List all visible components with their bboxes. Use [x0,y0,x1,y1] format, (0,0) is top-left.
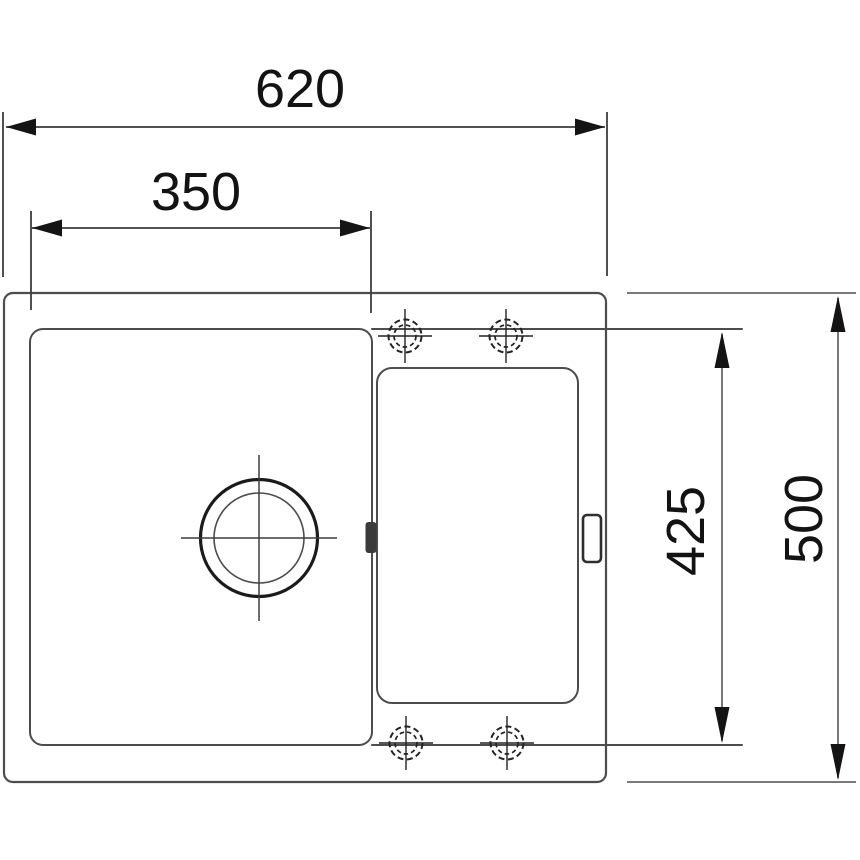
rim-clip-icon [583,515,601,562]
drainboard [377,368,578,703]
dim-label-inner-depth: 425 [656,486,716,576]
sink-technical-drawing: 620 350 425 500 [0,0,860,860]
dim-horizontal-group [3,112,607,313]
tap-hole-knockout-icon-top-right [479,309,533,363]
dim-label-overall-width: 620 [255,59,345,119]
tap-holes [378,309,534,770]
dim-label-bowl-width: 350 [151,162,241,222]
arrow-down-icon [831,744,846,780]
arrow-left-icon [32,220,62,237]
arrow-right-icon [575,119,605,136]
tap-hole-knockout-icon-bottom-right [480,716,534,770]
arrow-left-icon [6,119,36,136]
arrow-right-icon [340,220,370,237]
tap-hole-knockout-icon-top-left [378,309,432,363]
overflow-notch-icon [366,522,377,553]
drain-hole-icon [181,455,337,621]
arrow-up-icon [715,332,730,368]
arrow-up-icon [831,296,846,332]
tap-hole-knockout-icon-bottom-left [379,716,433,770]
arrow-down-icon [715,707,730,743]
drain-crosshair [181,455,337,621]
dim-arrowheads [6,119,846,781]
dim-label-overall-depth: 500 [774,474,834,564]
